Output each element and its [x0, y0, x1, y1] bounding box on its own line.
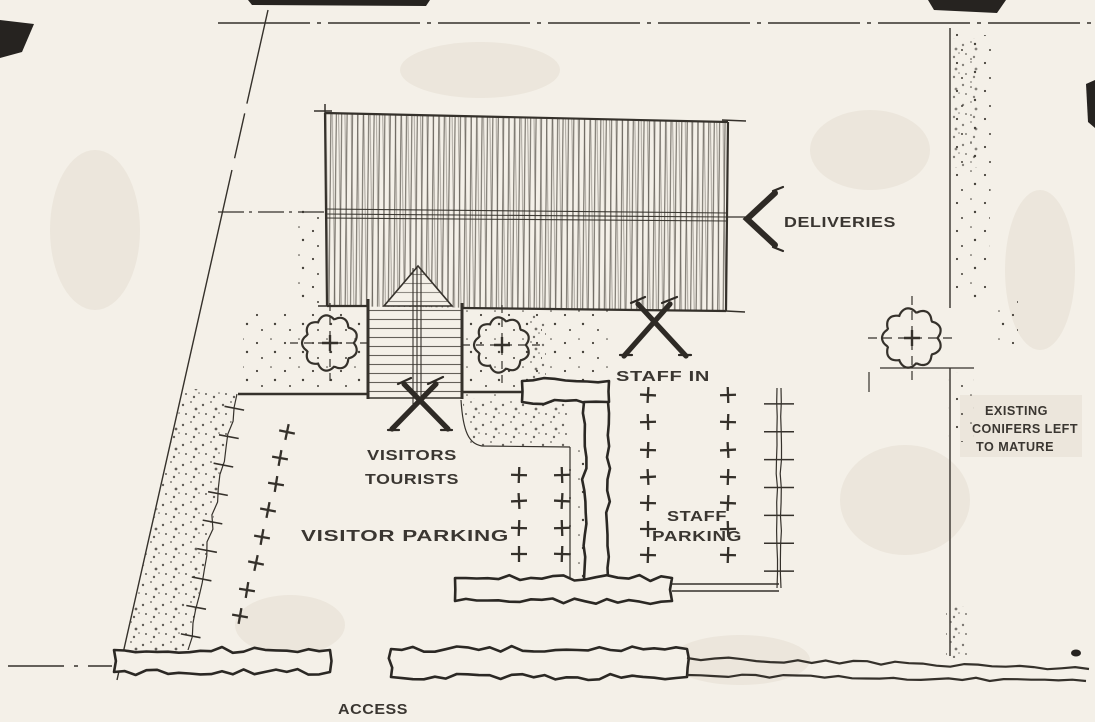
stray-mark — [1071, 650, 1081, 657]
entrance-west-planting — [243, 312, 368, 395]
east-conifer-mid — [948, 372, 974, 442]
visitors-label-line1: VISITORS — [367, 448, 457, 464]
entrance-steps-hatch — [369, 305, 461, 399]
building-west-planting — [297, 208, 325, 308]
entrance-curve-planting — [462, 398, 570, 447]
staff-parking-label-line2: PARKING — [652, 529, 742, 545]
hedge-side-planting — [566, 450, 584, 578]
entrance-east-dense-dots — [528, 315, 546, 387]
conifers-label-line3: TO MATURE — [976, 439, 1054, 454]
conifers-label-line2: CONIFERS LEFT — [972, 421, 1078, 436]
hedge-mid-bottom — [455, 575, 672, 604]
staff-in-label: STAFF IN — [616, 369, 710, 385]
conifers-label-line1: EXISTING — [985, 403, 1048, 418]
visitors-label-line2: TOURISTS — [365, 472, 459, 488]
east-conifer-dots — [992, 300, 1018, 350]
site-plan-page: DELIVERIES STAFF IN VISITORS TOURISTS VI… — [0, 0, 1095, 722]
hedge-south-east — [389, 646, 689, 680]
site-plan-drawing: DELIVERIES STAFF IN VISITORS TOURISTS VI… — [0, 0, 1095, 722]
hedge-vertical-strip — [582, 402, 610, 581]
hedge-top-piece — [522, 378, 609, 404]
staff-parking-label-line1: STAFF — [667, 509, 727, 525]
east-conifer-dense — [952, 38, 978, 168]
visitor-parking-label: VISITOR PARKING — [301, 528, 509, 545]
edge-band-top — [248, 0, 430, 6]
deliveries-label: DELIVERIES — [784, 214, 896, 231]
hedge-south-west — [114, 647, 332, 675]
access-label: ACCESS — [338, 702, 408, 718]
